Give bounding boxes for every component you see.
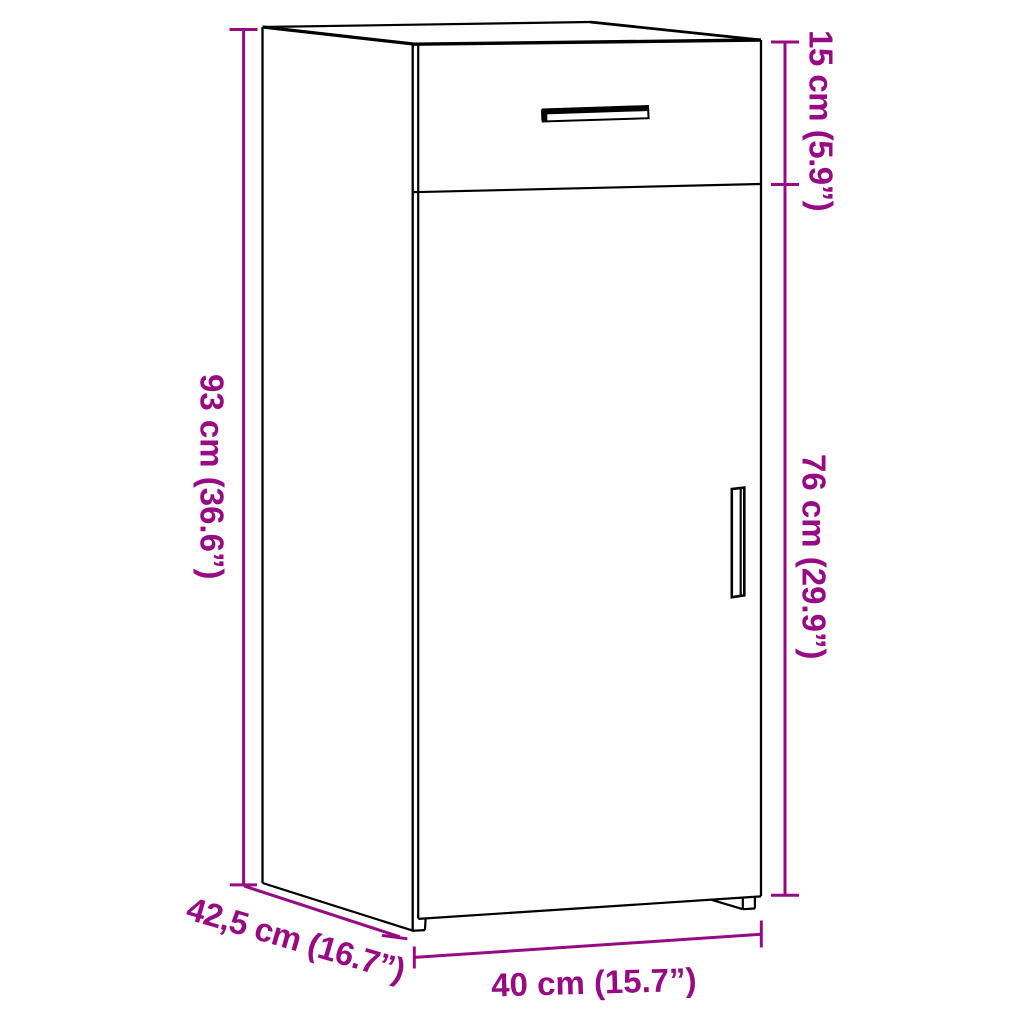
svg-text:40 cm (15.7”): 40 cm (15.7”)	[491, 961, 697, 1004]
svg-text:76 cm (29.9”): 76 cm (29.9”)	[796, 454, 833, 659]
svg-text:93 cm (36.6”): 93 cm (36.6”)	[194, 374, 231, 579]
svg-text:15 cm (5.9”): 15 cm (5.9”)	[803, 30, 840, 211]
